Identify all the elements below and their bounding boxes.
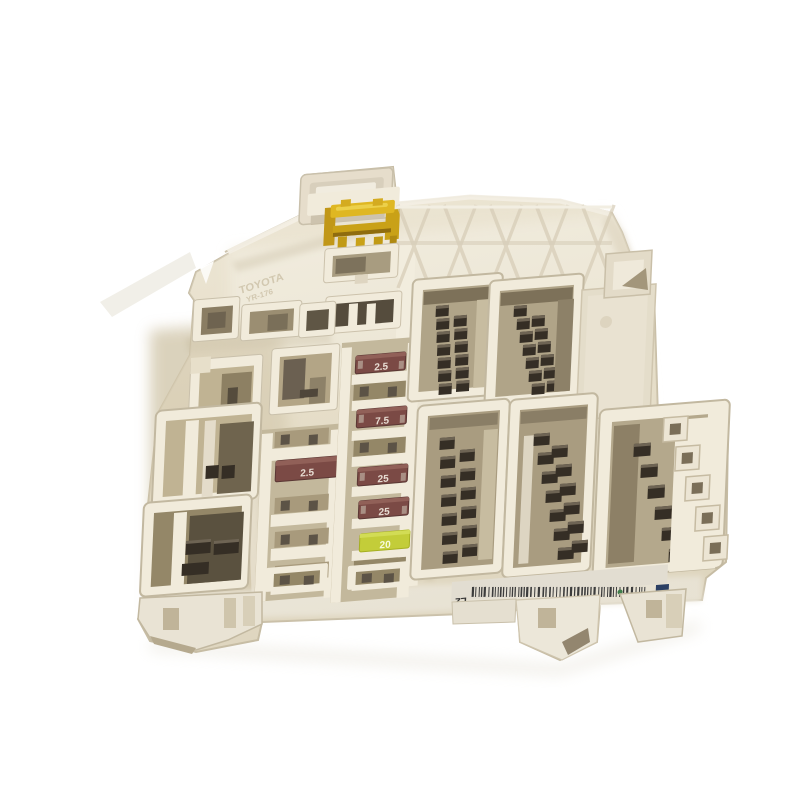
svg-text:7.5: 7.5 (375, 415, 390, 427)
svg-text:2.5: 2.5 (374, 361, 389, 373)
svg-text:20: 20 (379, 539, 391, 551)
svg-text:25: 25 (377, 474, 389, 486)
svg-text:2.5: 2.5 (300, 467, 315, 479)
svg-text:25: 25 (378, 507, 390, 519)
